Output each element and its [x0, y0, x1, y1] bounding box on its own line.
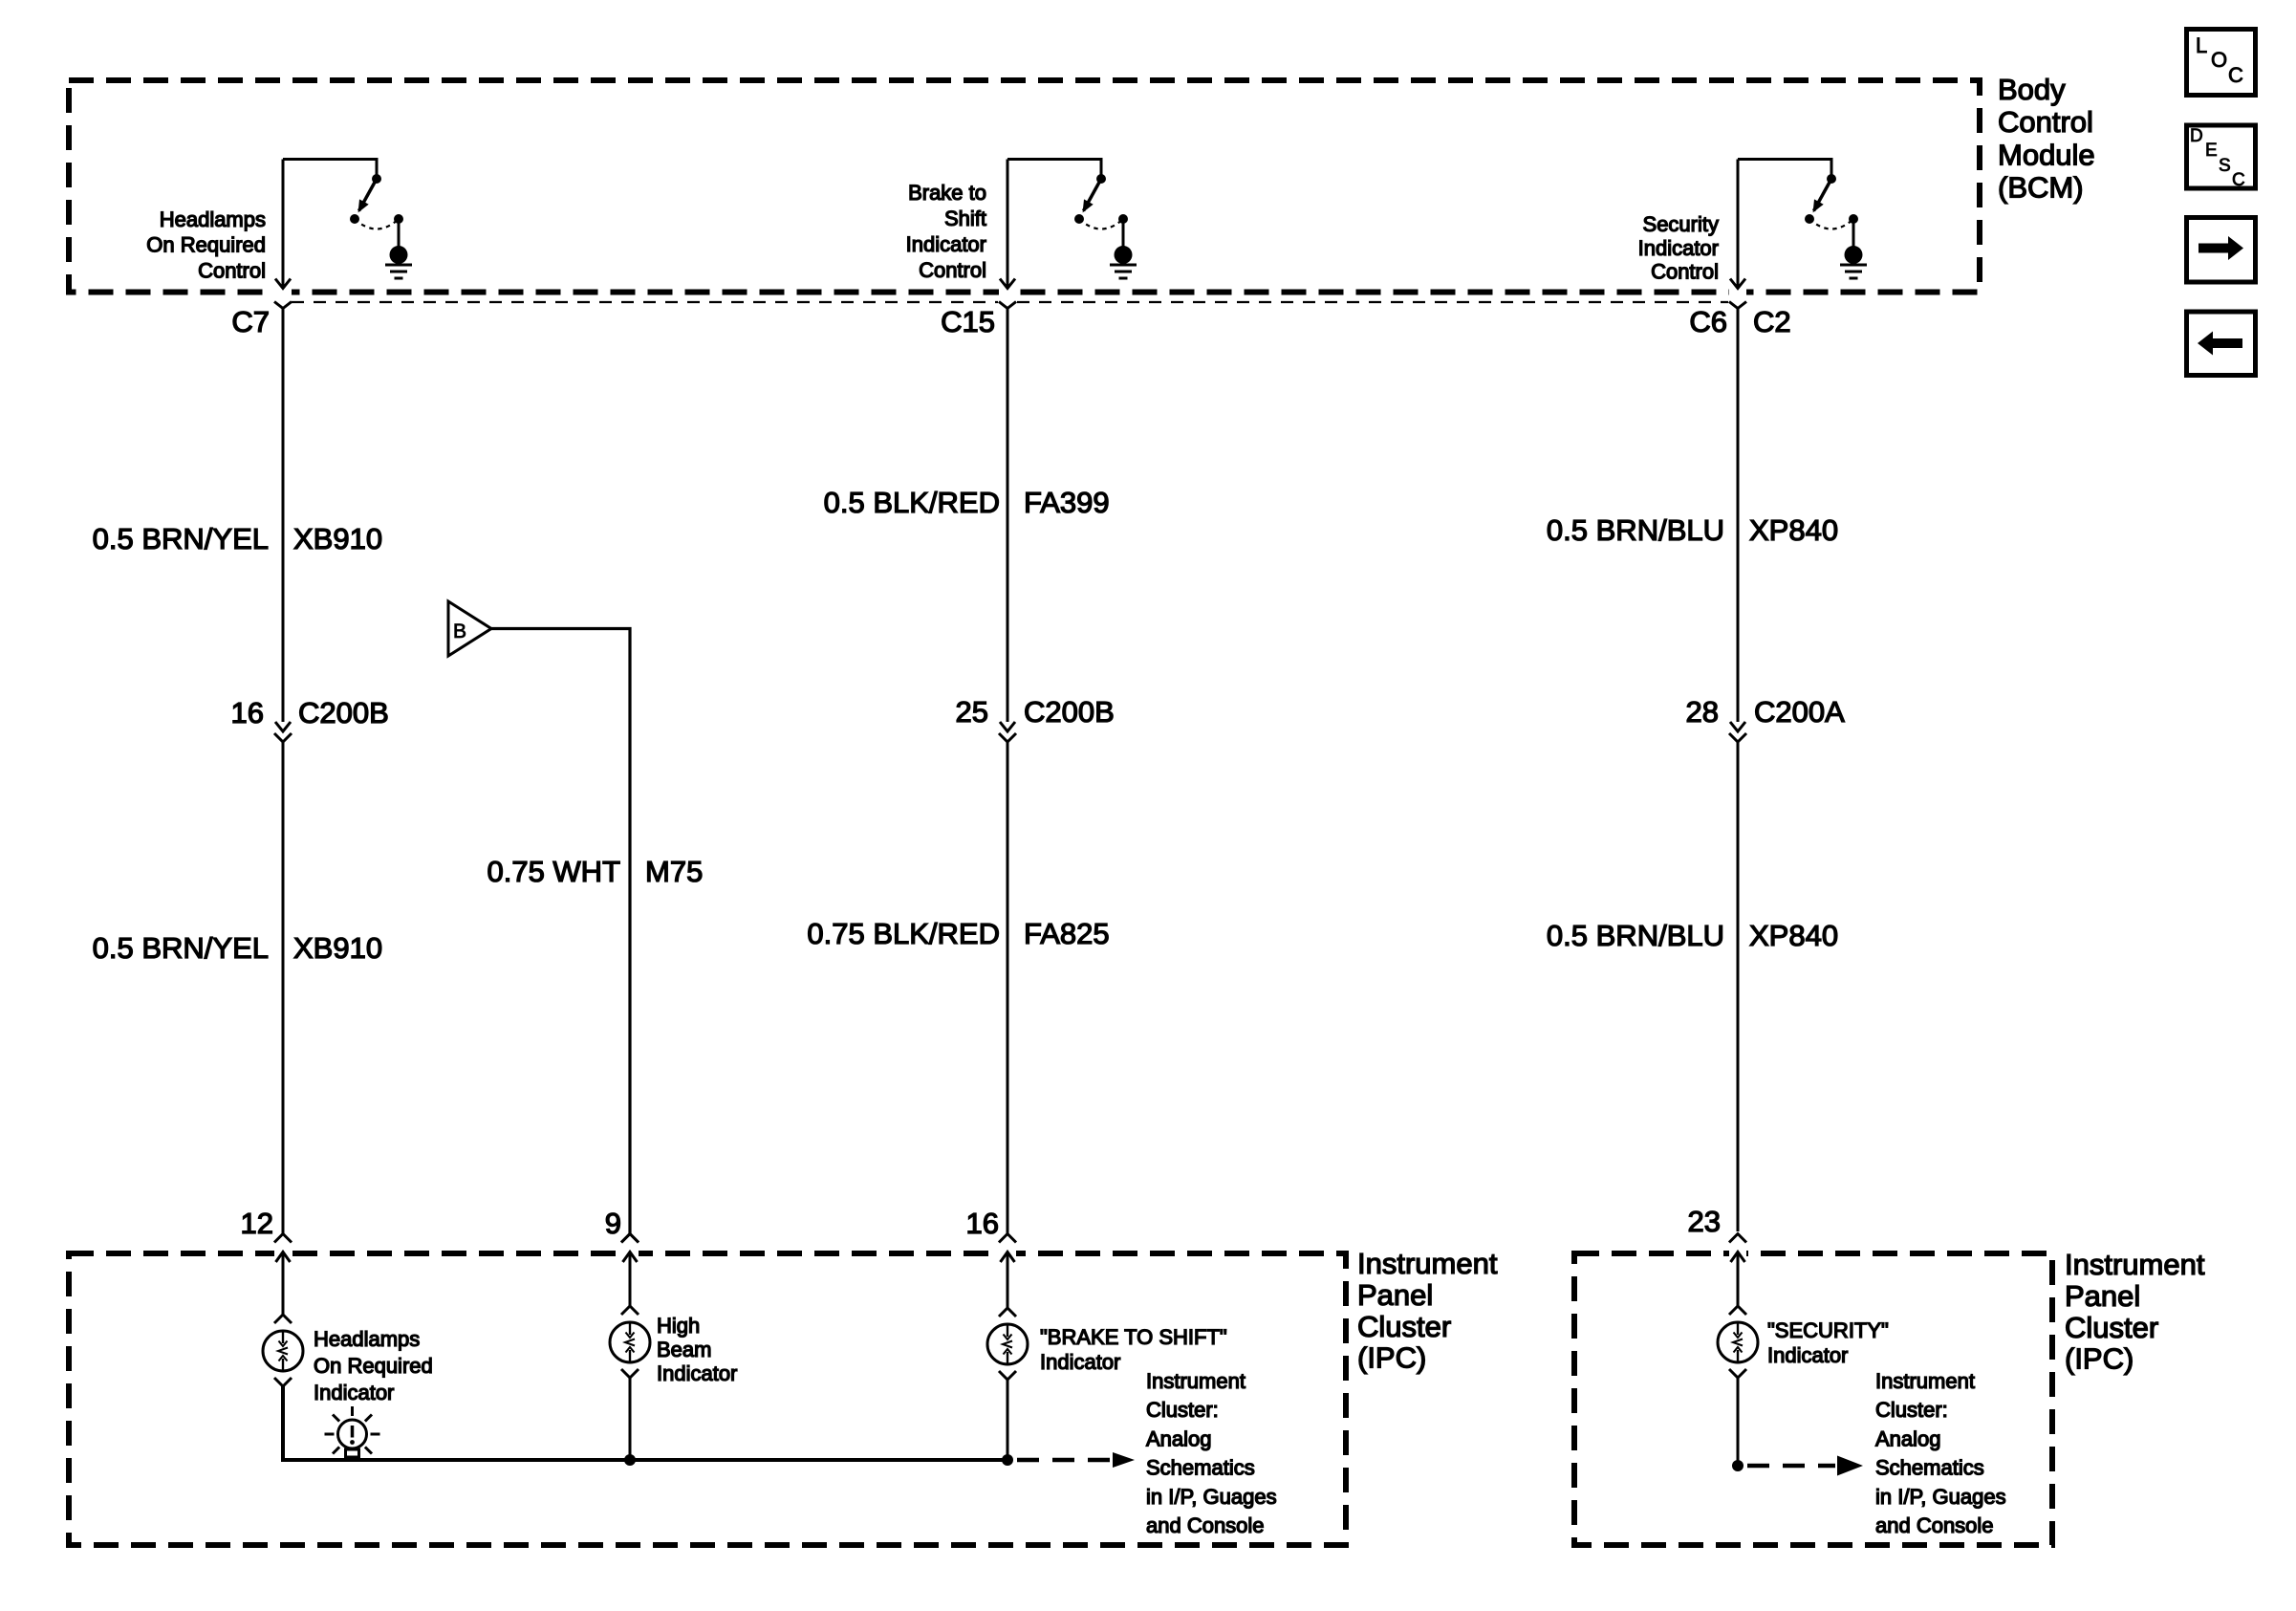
svg-text:Brake to: Brake to: [908, 181, 986, 205]
svg-text:"BRAKE TO SHIFT": "BRAKE TO SHIFT": [1040, 1325, 1227, 1349]
svg-text:Cluster:: Cluster:: [1875, 1398, 1948, 1422]
svg-text:C: C: [2228, 63, 2243, 87]
svg-text:Shift: Shift: [944, 207, 986, 230]
svg-text:0.5 BRN/BLU: 0.5 BRN/BLU: [1547, 919, 1724, 952]
svg-text:Control: Control: [198, 258, 266, 282]
svg-text:On Required: On Required: [146, 233, 266, 257]
svg-text:B: B: [453, 620, 466, 642]
svg-text:16: 16: [231, 696, 264, 729]
svg-text:Cluster: Cluster: [2065, 1311, 2158, 1344]
svg-text:in I/P, Guages: in I/P, Guages: [1146, 1485, 1277, 1509]
svg-text:C200B: C200B: [1024, 695, 1115, 729]
svg-text:and Console: and Console: [1146, 1513, 1265, 1537]
svg-text:9: 9: [605, 1207, 621, 1240]
svg-text:S: S: [2219, 156, 2231, 176]
svg-text:Control: Control: [1998, 105, 2093, 139]
svg-text:0.5 BLK/RED: 0.5 BLK/RED: [824, 486, 1000, 519]
svg-text:Schematics: Schematics: [1146, 1456, 1255, 1480]
svg-text:Body: Body: [1998, 73, 2066, 106]
svg-text:Indicator: Indicator: [1040, 1350, 1120, 1374]
svg-text:Analog: Analog: [1146, 1426, 1212, 1450]
svg-text:XB910: XB910: [293, 931, 382, 965]
svg-text:Indicator: Indicator: [1638, 236, 1719, 260]
svg-text:0.5 BRN/YEL: 0.5 BRN/YEL: [93, 522, 269, 555]
svg-text:Schematics: Schematics: [1875, 1456, 1984, 1480]
svg-text:M75: M75: [645, 855, 703, 888]
svg-text:Analog: Analog: [1875, 1426, 1941, 1450]
svg-text:25: 25: [956, 695, 988, 729]
svg-text:Cluster: Cluster: [1357, 1310, 1451, 1343]
svg-text:16: 16: [966, 1207, 999, 1240]
svg-text:Indicator: Indicator: [657, 1361, 737, 1385]
svg-text:Headlamps: Headlamps: [160, 207, 266, 231]
svg-text:C: C: [2232, 170, 2245, 190]
svg-text:(IPC): (IPC): [1357, 1341, 1426, 1375]
svg-text:(BCM): (BCM): [1998, 171, 2084, 205]
svg-text:Cluster:: Cluster:: [1146, 1398, 1219, 1422]
svg-text:Instrument: Instrument: [2065, 1248, 2205, 1281]
svg-text:C2: C2: [1753, 305, 1791, 338]
svg-text:0.75 WHT: 0.75 WHT: [487, 855, 620, 888]
svg-text:Instrument: Instrument: [1357, 1247, 1498, 1280]
svg-text:in I/P, Guages: in I/P, Guages: [1875, 1485, 2006, 1509]
svg-text:Control: Control: [919, 258, 986, 282]
svg-text:28: 28: [1686, 695, 1719, 729]
svg-text:Indicator: Indicator: [314, 1381, 394, 1404]
svg-text:FA399: FA399: [1024, 486, 1110, 519]
svg-text:Security: Security: [1643, 212, 1719, 236]
svg-text:0.5 BRN/BLU: 0.5 BRN/BLU: [1547, 513, 1724, 547]
svg-text:Module: Module: [1998, 138, 2095, 171]
svg-text:XP840: XP840: [1749, 919, 1838, 952]
svg-text:FA825: FA825: [1024, 917, 1110, 950]
svg-text:High: High: [657, 1314, 700, 1338]
svg-text:XB910: XB910: [293, 522, 382, 555]
svg-text:L: L: [2196, 33, 2207, 57]
svg-text:"SECURITY": "SECURITY": [1767, 1318, 1889, 1342]
svg-text:Beam: Beam: [657, 1338, 711, 1361]
svg-text:Instrument: Instrument: [1875, 1369, 1975, 1393]
svg-text:XP840: XP840: [1749, 513, 1838, 547]
svg-text:12: 12: [241, 1207, 273, 1240]
svg-text:C200A: C200A: [1754, 695, 1845, 729]
svg-text:On Required: On Required: [314, 1354, 433, 1378]
svg-text:0.5 BRN/YEL: 0.5 BRN/YEL: [93, 931, 269, 965]
svg-text:Indicator: Indicator: [1767, 1343, 1848, 1367]
svg-text:C15: C15: [941, 305, 995, 338]
svg-text:Indicator: Indicator: [906, 232, 986, 256]
svg-text:23: 23: [1688, 1205, 1721, 1238]
svg-text:D: D: [2190, 126, 2203, 146]
svg-text:0.75 BLK/RED: 0.75 BLK/RED: [807, 917, 1000, 950]
svg-text:O: O: [2211, 48, 2227, 72]
svg-text:C6: C6: [1689, 305, 1727, 338]
svg-text:Instrument: Instrument: [1146, 1369, 1245, 1393]
svg-text:Panel: Panel: [1357, 1278, 1433, 1312]
svg-text:E: E: [2205, 141, 2218, 161]
svg-text:(IPC): (IPC): [2065, 1342, 2134, 1376]
svg-text:C7: C7: [231, 305, 270, 338]
svg-text:Headlamps: Headlamps: [314, 1327, 420, 1351]
svg-text:Panel: Panel: [2065, 1279, 2140, 1313]
svg-text:Control: Control: [1651, 260, 1719, 284]
svg-text:C200B: C200B: [298, 696, 389, 729]
svg-text:and Console: and Console: [1875, 1513, 1994, 1537]
